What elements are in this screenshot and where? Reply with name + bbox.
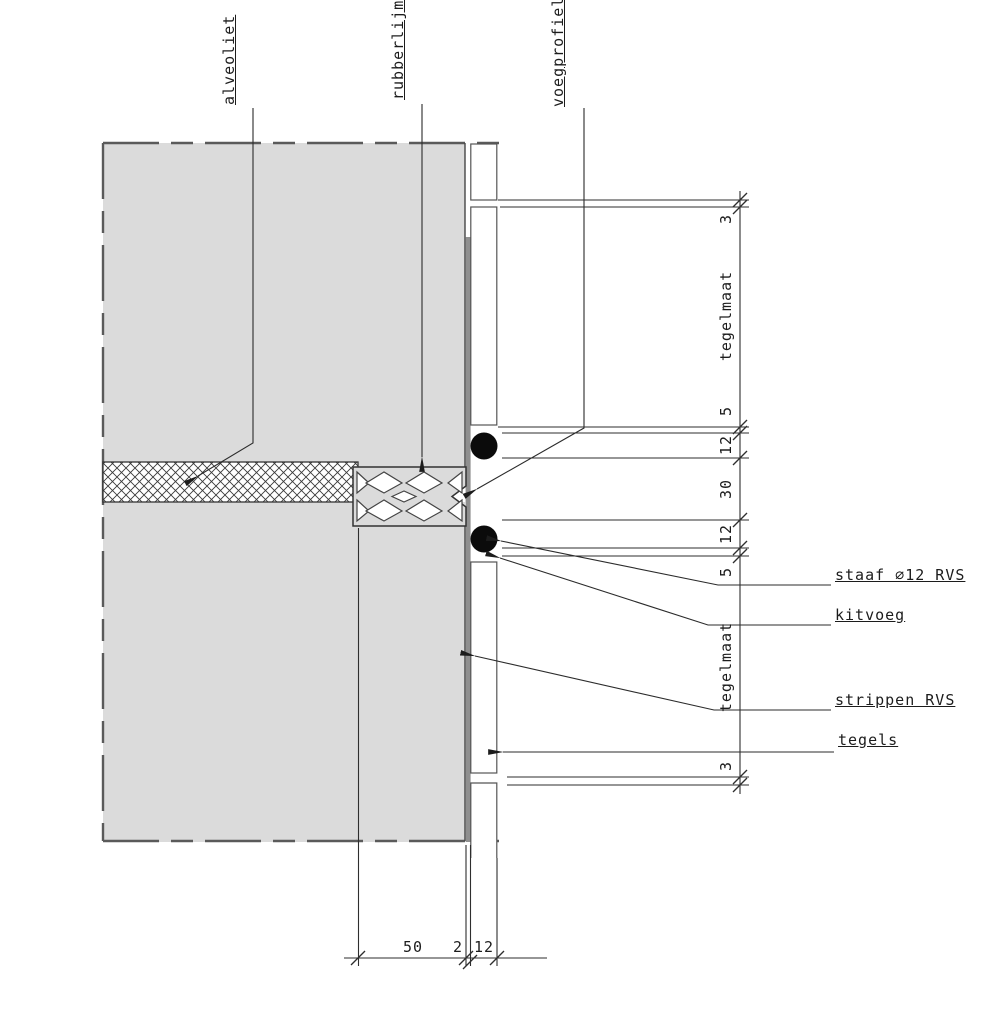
callout-staaf-rvs: staaf ⌀12 RVS — [835, 566, 965, 584]
dim-bottom-50: 50 — [403, 939, 423, 955]
dim-right-tegelmaat-bottom: tegelmaat — [718, 622, 734, 712]
rod-upper — [471, 433, 498, 460]
drawing-canvas — [0, 0, 1001, 1024]
dimension-chain-right — [498, 191, 749, 794]
tile-lower — [471, 562, 497, 773]
alveoliet-strip — [103, 462, 358, 502]
callout-voegprofiel: voegprofiel — [549, 0, 567, 107]
dim-right-12-lower: 12 — [718, 524, 734, 544]
leader-kitvoeg — [500, 558, 831, 625]
callout-strippen-rvs: strippen RVS — [835, 691, 955, 709]
steel-rods — [471, 433, 498, 553]
dim-right-3-top: 3 — [718, 214, 734, 224]
dim-bottom-12: 12 — [474, 939, 494, 955]
wall-upper-fill — [103, 143, 465, 467]
rubber-joint-profile — [353, 467, 466, 526]
dim-bottom-2: 2 — [453, 939, 463, 955]
tile-upper — [471, 207, 497, 425]
callout-tegels: tegels — [838, 731, 898, 749]
rod-lower — [471, 526, 498, 553]
dim-right-30: 30 — [718, 479, 734, 499]
callout-alveoliet: alveoliet — [220, 15, 238, 105]
dim-right-tegelmaat-top: tegelmaat — [718, 271, 734, 361]
dim-right-5-lower: 5 — [718, 567, 734, 577]
tile-top-partial — [471, 144, 497, 200]
tile-bottom-partial — [471, 783, 497, 858]
dim-right-5-upper: 5 — [718, 406, 734, 416]
tiles — [471, 144, 497, 858]
dim-right-3-bottom: 3 — [718, 761, 734, 771]
strippen-rvs-strip — [466, 237, 471, 842]
callout-rubberlijm: rubberlijm — [389, 0, 407, 100]
callout-kitvoeg: kitvoeg — [835, 606, 905, 624]
wall-lower-fill — [103, 502, 465, 842]
leader-strippen — [475, 656, 831, 710]
technical-drawing: alveoliet rubberlijm voegprofiel 3 tegel… — [0, 0, 1001, 1024]
dim-right-12-upper: 12 — [718, 435, 734, 455]
